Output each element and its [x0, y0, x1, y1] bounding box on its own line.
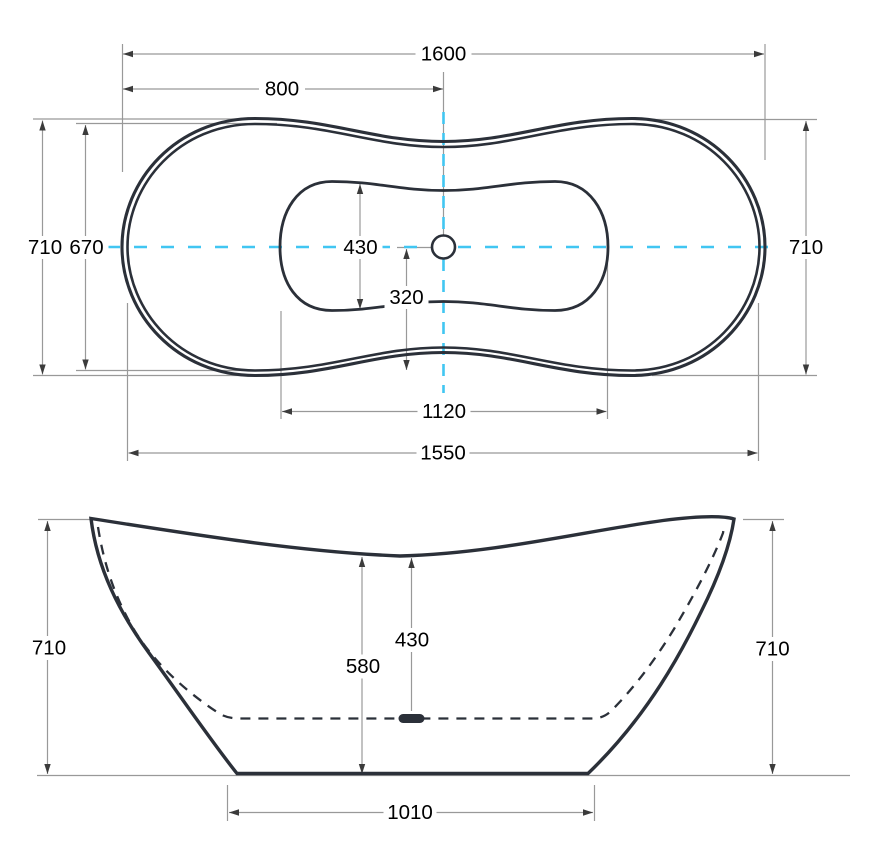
dim-label-rim-length: 1550 — [420, 442, 466, 465]
drain-circle — [432, 236, 455, 259]
dim-label-inner-rim-width: 670 — [69, 236, 103, 259]
dim-label-height-right: 710 — [755, 638, 789, 661]
dim-label-overall-width: 710 — [28, 236, 62, 259]
technical-drawing-canvas: 1600 800 710 670 710 430 320 1120 1550 7… — [0, 0, 877, 861]
dim-label-base-length: 1010 — [387, 801, 433, 824]
dim-label-basin-length: 1120 — [422, 400, 466, 423]
dim-label-overall-length: 1600 — [421, 43, 467, 66]
dim-label-basin-width: 430 — [343, 236, 377, 259]
label-masks — [23, 42, 828, 825]
drain-front-view — [399, 714, 425, 723]
dim-label-rim-to-drain: 430 — [395, 629, 429, 652]
dim-label-height-left: 710 — [32, 637, 66, 660]
dim-label-drain-to-edge: 320 — [389, 286, 423, 309]
dimension-labels: 1600 800 710 670 710 430 320 1120 1550 7… — [28, 43, 823, 825]
dim-label-inner-height: 580 — [346, 655, 380, 678]
dim-label-center-to-end: 800 — [265, 78, 299, 101]
dim-label-overall-width-right: 710 — [789, 236, 823, 259]
bathtub-dimension-drawing: 1600 800 710 670 710 430 320 1120 1550 7… — [0, 0, 877, 861]
